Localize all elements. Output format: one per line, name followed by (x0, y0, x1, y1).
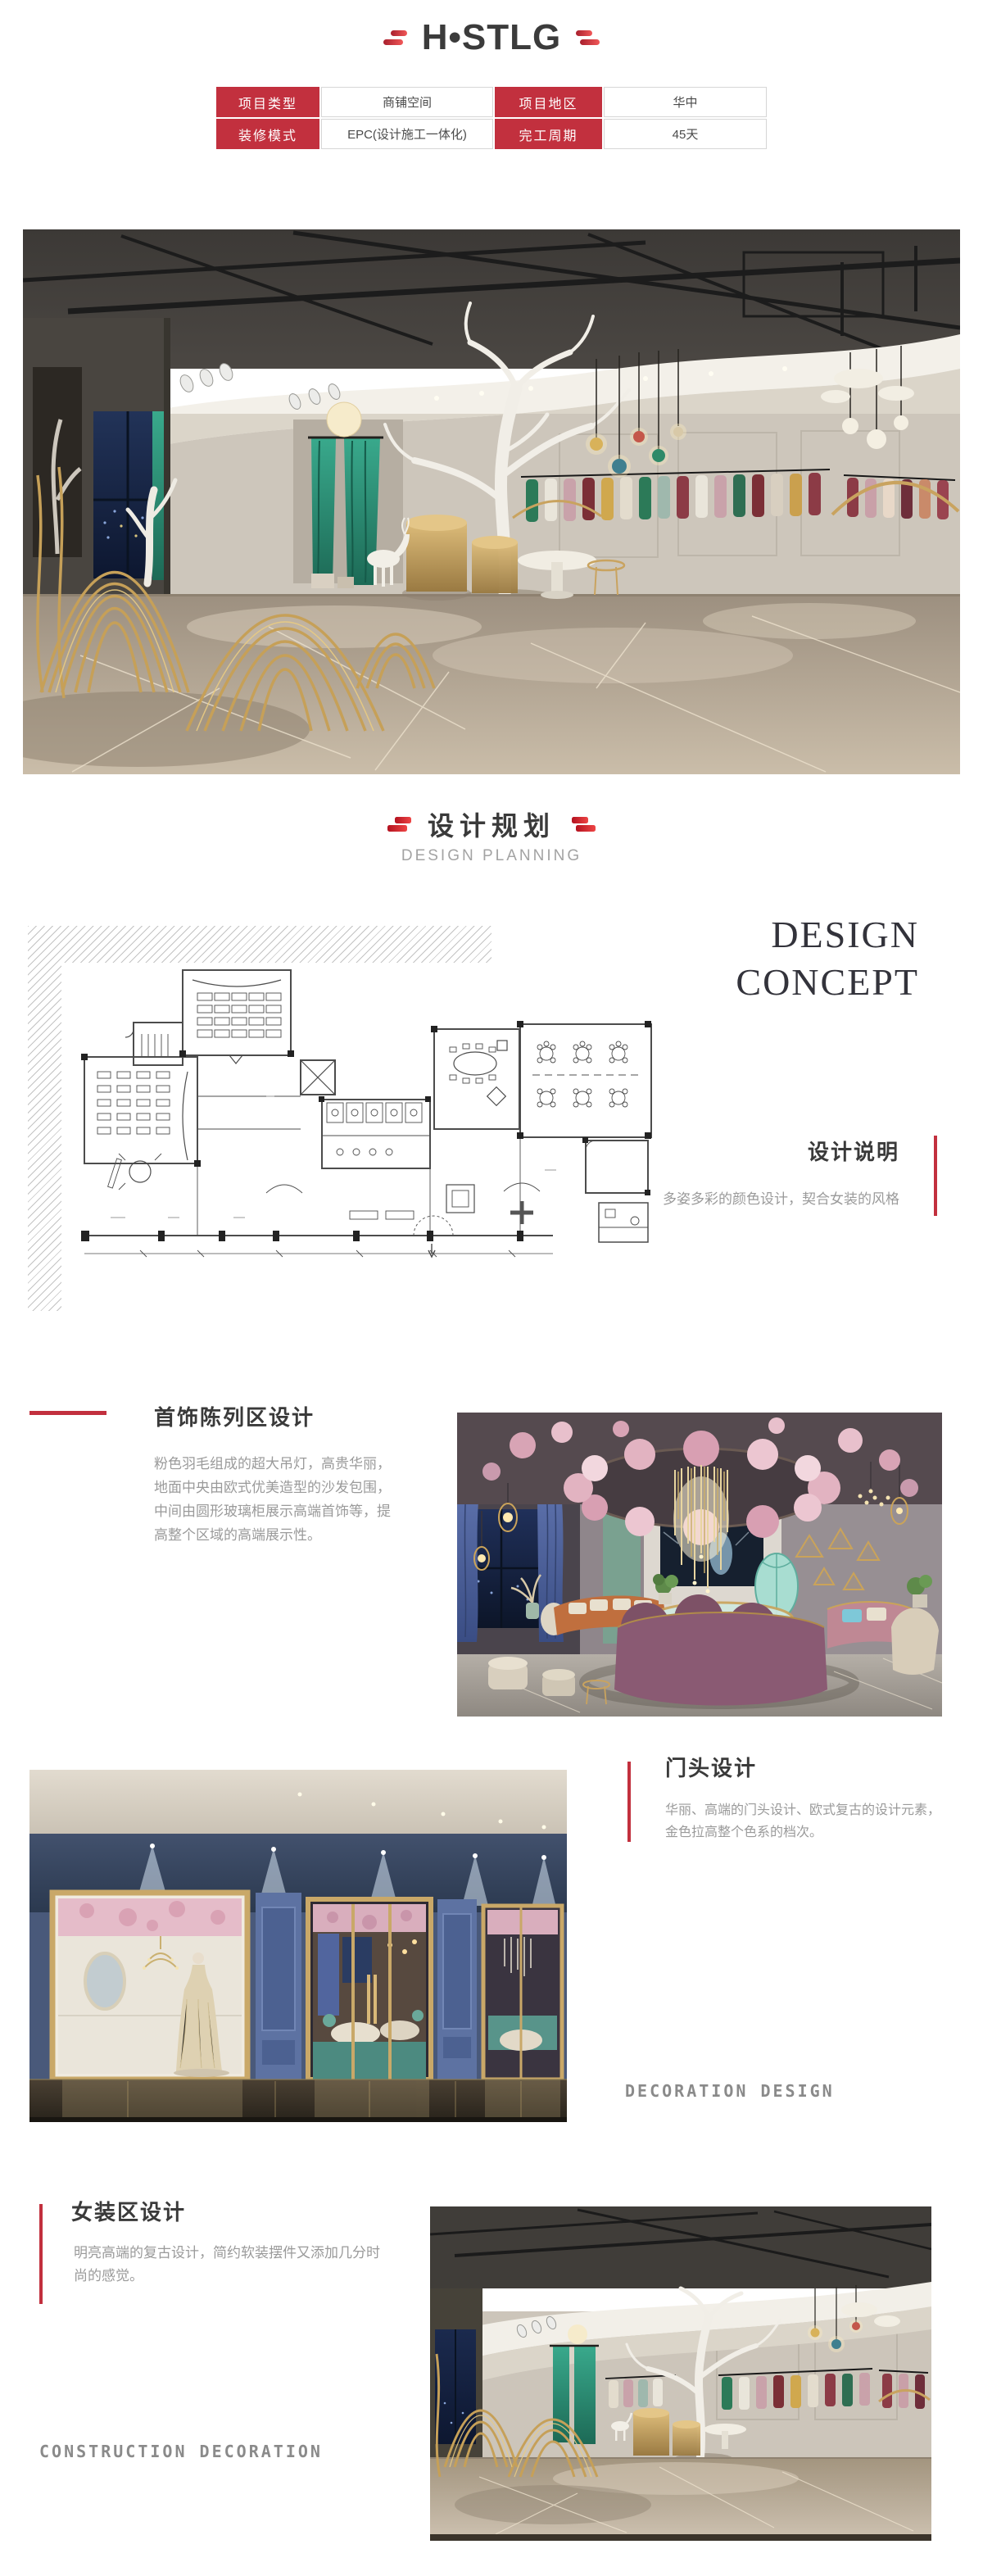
womens-area-render (430, 2206, 931, 2541)
hatch-band-top (28, 926, 491, 963)
display-window-right (483, 1906, 562, 2079)
blue-pilaster (437, 1899, 477, 2079)
blue-pilaster (256, 1893, 301, 2079)
table-value: EPC(设计施工一体化) (321, 119, 493, 149)
brand-logo: H•STLG (422, 17, 562, 58)
storefront-render (29, 1770, 567, 2122)
section-subtitle: DESIGN PLANNING (0, 847, 983, 865)
store-interior-render (23, 229, 960, 774)
project-info-table: 项目类型 商铺空间 项目地区 华中 装修模式 EPC(设计施工一体化) 完工周期… (216, 87, 767, 149)
red-accent-bar (934, 1136, 937, 1216)
table-value: 华中 (604, 87, 767, 117)
concept-heading-line2: CONCEPT (736, 959, 919, 1006)
storefront-photo (29, 1770, 567, 2122)
womens-section-title: 女装区设计 (71, 2197, 186, 2227)
jewelry-area-photo (457, 1413, 942, 1717)
red-dash-icon (574, 29, 600, 46)
womens-area-photo (430, 2206, 931, 2541)
storefront-section-body: 华丽、高端的门头设计、欧式复古的设计元素，金色拉高整个色系的档次。 (665, 1799, 942, 1844)
jewelry-section-body: 粉色羽毛组成的超大吊灯，高贵华丽，地面中央由欧式优美造型的沙发包围，中间由圆形玻… (154, 1452, 401, 1547)
hatch-band-left (28, 926, 61, 1311)
concept-heading: DESIGN CONCEPT (736, 911, 919, 1006)
cream-armchair (891, 1608, 939, 1675)
storefront-caption: DECORATION DESIGN (625, 2081, 835, 2101)
red-accent-bar (39, 2204, 43, 2304)
structural-columns (81, 1021, 651, 1241)
table-label: 项目类型 (216, 87, 319, 117)
red-accent-bar (627, 1762, 631, 1842)
red-dash-icon (570, 816, 596, 832)
storefront-section-title: 门头设计 (665, 1753, 757, 1783)
design-note: 设计说明 多姿多彩的颜色设计，契合女装的风格 (663, 1136, 937, 1216)
design-note-text: 设计说明 多姿多彩的颜色设计，契合女装的风格 (663, 1136, 899, 1208)
table-label: 项目地区 (495, 87, 602, 117)
table-label: 装修模式 (216, 119, 319, 149)
round-tables (537, 1041, 627, 1107)
entry-doors (308, 1899, 431, 2079)
table-value: 商铺空间 (321, 87, 493, 117)
jewelry-section-title: 首饰陈列区设计 (154, 1403, 315, 1432)
womens-section-body: 明亮高端的复古设计，简约软装摆件又添加几分时尚的感觉。 (74, 2242, 380, 2288)
red-dash-icon (387, 816, 413, 832)
jewelry-area-render (457, 1413, 942, 1717)
design-note-body: 多姿多彩的颜色设计，契合女装的风格 (663, 1187, 899, 1208)
design-note-title: 设计说明 (663, 1136, 899, 1166)
section-title: 设计规划 (428, 805, 555, 843)
header-logo: H•STLG (0, 13, 983, 62)
display-window-left (52, 1893, 247, 2079)
red-dash-icon (383, 29, 409, 46)
section-header-design-planning: 设计规划 (0, 806, 983, 842)
floor-plan (61, 965, 655, 1291)
floor-plan-drawing (61, 965, 655, 1291)
hero-store-photo (23, 229, 960, 774)
table-label: 完工周期 (495, 119, 602, 149)
table-value: 45天 (604, 119, 767, 149)
concept-heading-line1: DESIGN (736, 911, 919, 959)
page: H•STLG 项目类型 商铺空间 项目地区 华中 装修模式 EPC(设计施工一体… (0, 0, 983, 2576)
womens-caption: CONSTRUCTION DECORATION (39, 2442, 323, 2461)
red-accent-line (29, 1411, 106, 1415)
